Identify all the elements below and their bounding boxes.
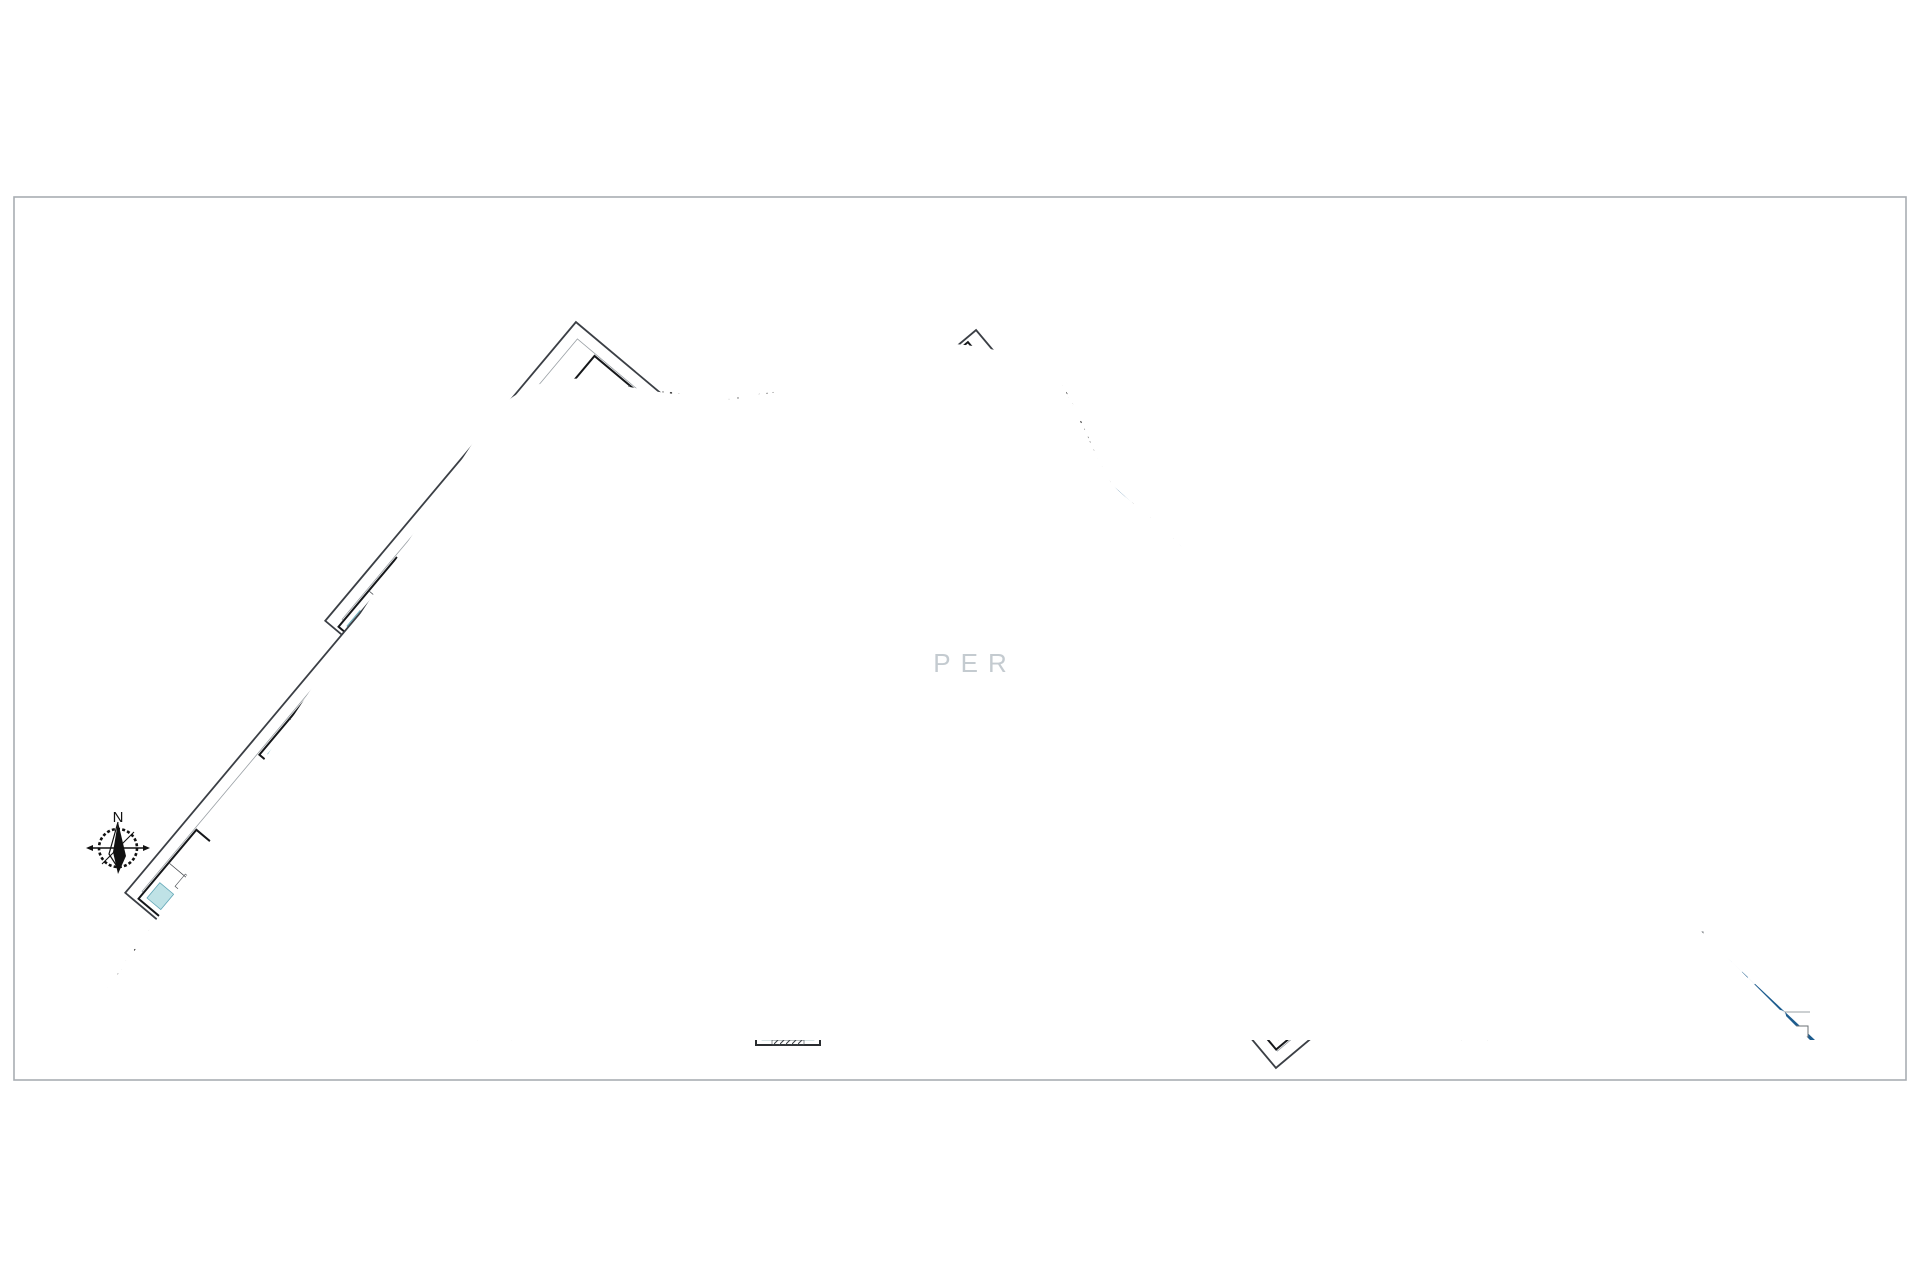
tree-circle: [1604, 824, 1616, 836]
tree-circle: [1543, 767, 1553, 777]
watermark-text: PER: [933, 648, 1016, 678]
site-plan-page: N PER: [0, 0, 1920, 1280]
site-plan-drawing: N PER: [0, 0, 1920, 1280]
tree-circle: [1663, 879, 1673, 889]
